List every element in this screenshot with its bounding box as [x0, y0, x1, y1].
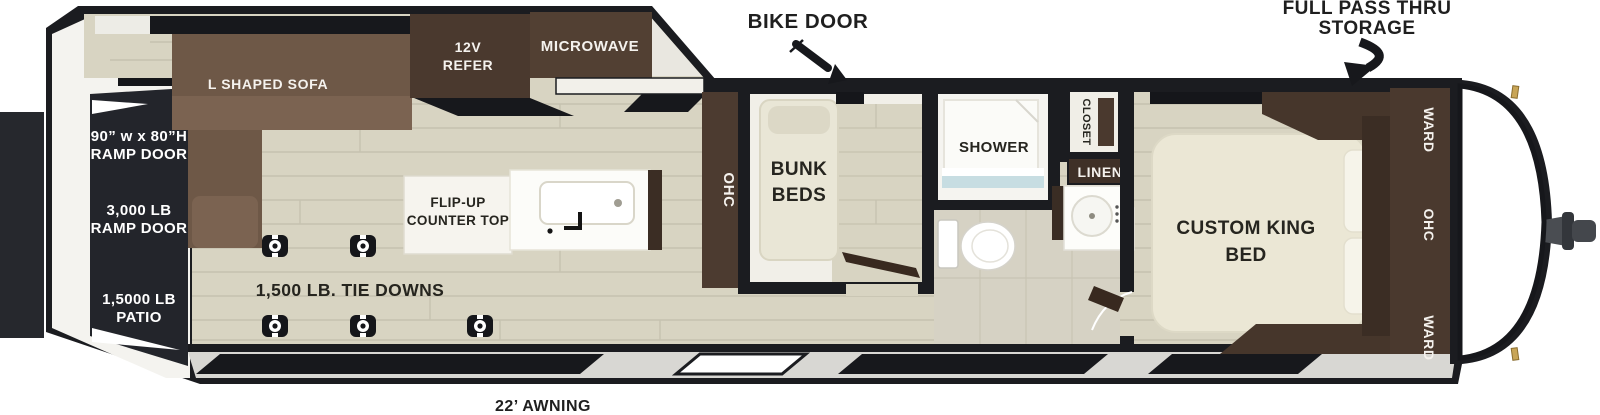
bedroom-ohc-label: OHC: [1421, 209, 1437, 242]
sink-drain: [614, 199, 622, 207]
floorplan-svg: 90” w x 80”H RAMP DOOR 3,000 LB RAMP DOO…: [0, 0, 1600, 415]
marker-light-top: [1511, 86, 1519, 99]
hitch-coupler: [1572, 220, 1596, 242]
ramp-size-line2: RAMP DOOR: [91, 146, 188, 163]
refer-cabinet: [410, 14, 530, 98]
patio-line2: PATIO: [116, 309, 162, 326]
refer-line2: REFER: [443, 57, 493, 73]
refer-line1: 12V: [455, 39, 482, 55]
bunk-door-opening: [846, 284, 918, 296]
microwave-counter: [556, 78, 704, 94]
closet-panel: [1098, 98, 1114, 146]
ramp-weight-line2: RAMP DOOR: [91, 220, 188, 237]
shower-label: SHOWER: [959, 139, 1029, 156]
closet-label: CLOSET: [1080, 98, 1092, 145]
ward-front-label: WARD: [1421, 107, 1437, 152]
window-bedroom: [1148, 354, 1322, 374]
sink-faucet: [578, 212, 582, 228]
counter-label-line2: COUNTER TOP: [407, 213, 509, 228]
king-bed-label-line1: CUSTOM KING: [1176, 218, 1315, 239]
window-garage: [196, 354, 604, 374]
window-mid: [838, 354, 1108, 374]
counter-label-line1: FLIP-UP: [430, 195, 485, 210]
bunk-room: BUNK BEDS: [738, 84, 934, 296]
shower-room: SHOWER: [926, 84, 1060, 210]
galley-ohc-label: OHC: [720, 172, 737, 207]
slideout-roof-gap: [95, 16, 150, 34]
shower-pan: [944, 100, 1038, 174]
marker-light-bottom: [1511, 348, 1519, 361]
awning-label: 22’ AWNING: [495, 398, 591, 415]
patio-line1: 1,5000 LB: [102, 291, 176, 308]
microwave-label: MICROWAVE: [541, 38, 639, 55]
bunk-label-line2: BEDS: [772, 185, 826, 206]
entry-door-step: [676, 354, 806, 374]
sofa-seat: [172, 96, 412, 130]
sofa-chaise-cushion: [192, 196, 258, 248]
toilet-bowl: [961, 222, 1015, 270]
sofa-label: L SHAPED SOFA: [208, 76, 328, 92]
tie-down-icon: [467, 315, 493, 337]
tie-downs-label: 1,500 LB. TIE DOWNS: [256, 280, 444, 300]
sink-faucet-arm: [564, 226, 582, 230]
kitchen-island: FLIP-UP COUNTER TOP: [404, 170, 662, 254]
bike-door-label: BIKE DOOR: [748, 10, 869, 33]
bunk-pillow: [768, 106, 830, 134]
bike-door-hinge: [836, 92, 864, 104]
ramp-weight-line1: 3,000 LB: [107, 202, 172, 219]
tie-down-icon: [350, 315, 376, 337]
tie-down-icon: [262, 315, 288, 337]
pass-thru-label-line1: FULL PASS THRU: [1283, 0, 1452, 19]
ward-rear-label: WARD: [1421, 315, 1437, 360]
king-bed-label-line2: BED: [1225, 245, 1266, 266]
floorplan-page: 90” w x 80”H RAMP DOOR 3,000 LB RAMP DOO…: [0, 0, 1600, 415]
shower-threshold: [942, 168, 1044, 176]
sink-sprayer-dot: [547, 228, 552, 233]
toilet-tank: [938, 220, 958, 268]
ramp-size-line1: 90” w x 80”H: [91, 128, 188, 145]
tie-down-icon: [350, 235, 376, 257]
island-end-panel: [648, 170, 662, 250]
headboard: [1362, 116, 1392, 336]
vanity-drain: [1089, 213, 1095, 219]
shower-glass-door: [942, 176, 1044, 188]
bunk-label-line1: BUNK: [771, 159, 828, 180]
patio-slab: [0, 112, 44, 338]
pass-thru-label-line2: STORAGE: [1318, 18, 1415, 39]
bedroom-wall-lower: [1120, 336, 1134, 352]
linen-label: LINEN: [1078, 164, 1123, 180]
toilet: [938, 220, 1015, 270]
vanity-side-panel: [1052, 186, 1064, 240]
tie-down-icon: [262, 235, 288, 257]
wardrobe-band: [1390, 88, 1452, 354]
closet: CLOSET: [1060, 84, 1128, 162]
bedroom-wall-upper: [1120, 84, 1134, 292]
